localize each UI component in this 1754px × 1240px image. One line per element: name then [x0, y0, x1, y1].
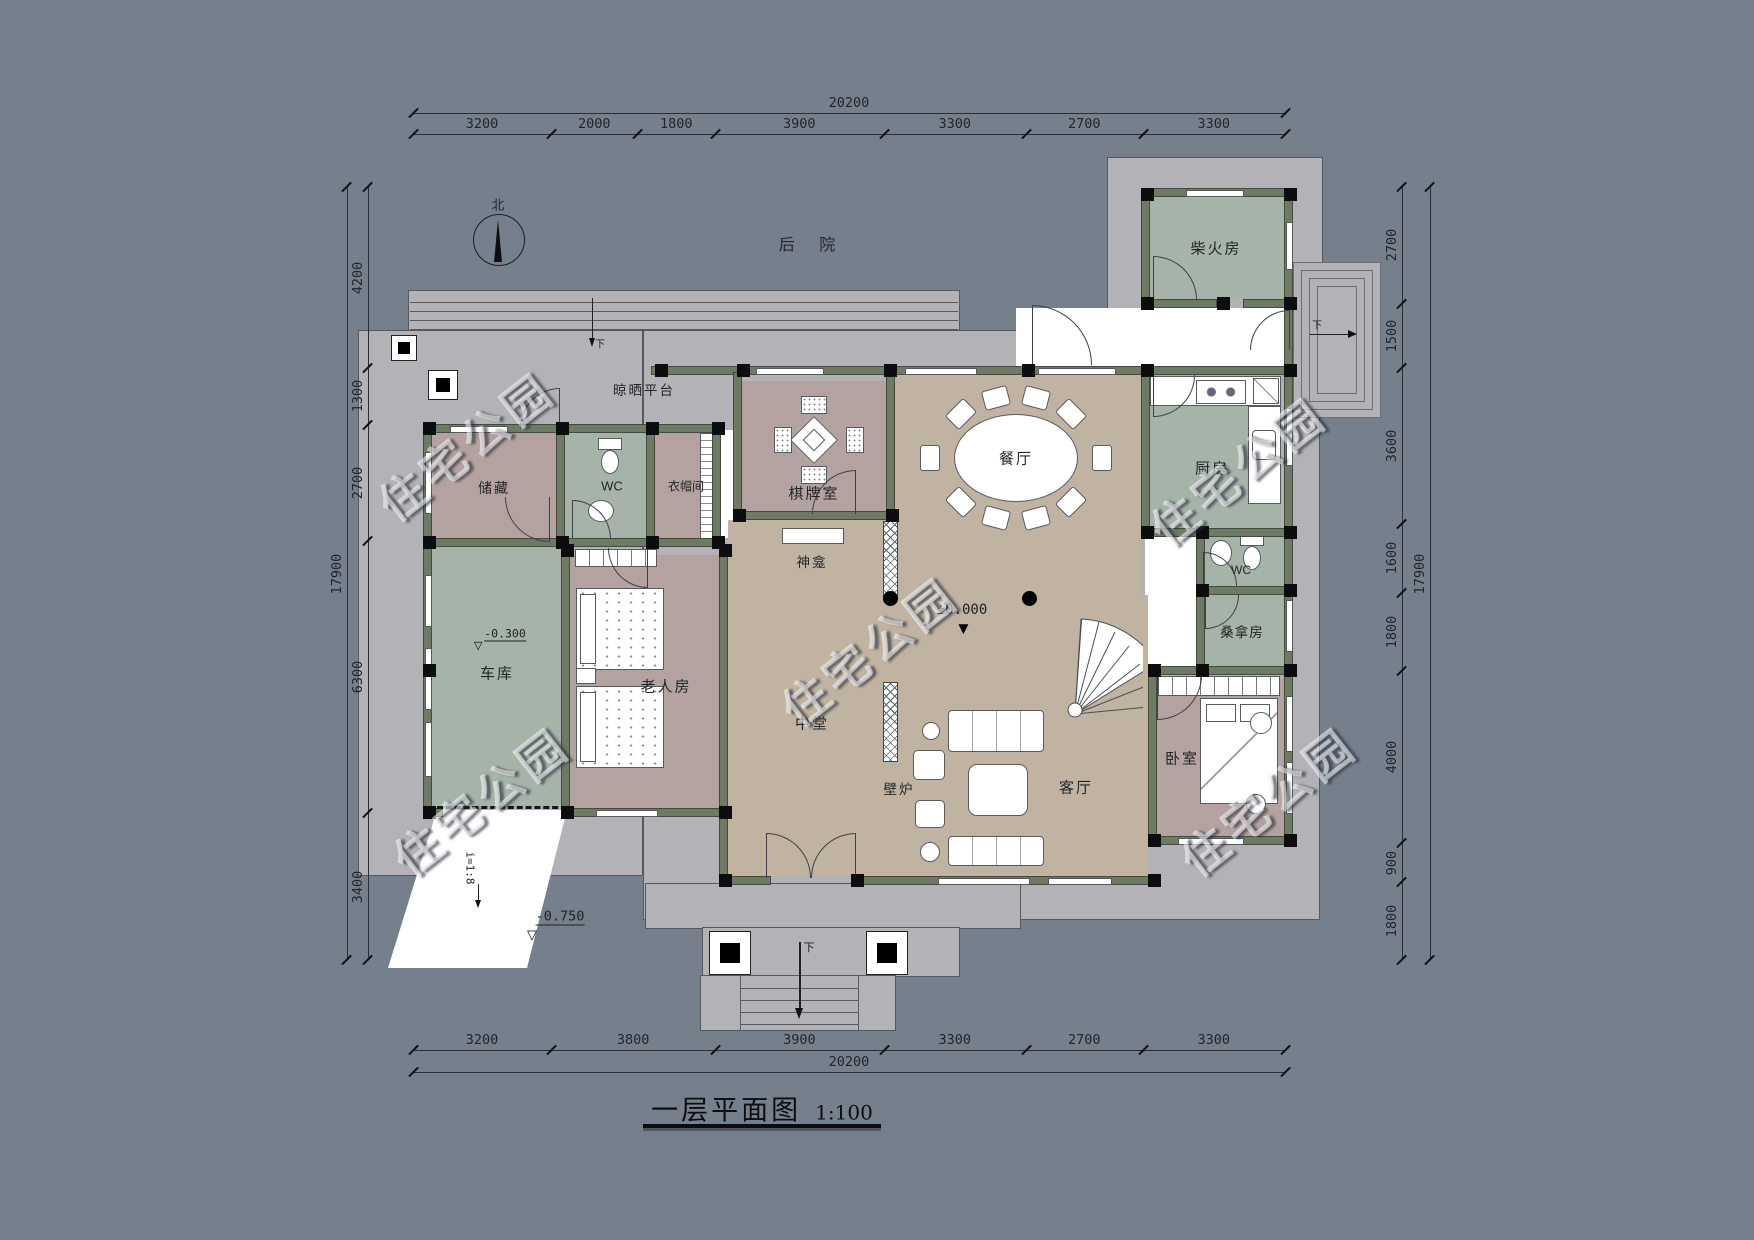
driveway-arrow-head: [475, 900, 481, 908]
wall-segment: [1148, 670, 1157, 844]
wall-segment: [719, 546, 728, 885]
room-label-bedroom: 卧室: [1165, 748, 1199, 769]
window: [1038, 368, 1116, 375]
column-marker: [712, 422, 725, 435]
dining-chair: [1092, 445, 1112, 471]
sofa: [948, 710, 1044, 752]
column-marker: [423, 664, 436, 677]
area-label-drying-platform: 晾晒平台: [613, 379, 675, 399]
dimension-bottom-segments: 320038003900330027003300: [413, 1028, 1285, 1051]
window: [756, 368, 824, 375]
pillow: [580, 594, 596, 664]
dim-label: 1800: [637, 116, 715, 132]
column-marker: [1284, 526, 1297, 539]
dim-label: 3300: [1142, 116, 1284, 132]
window: [905, 368, 977, 375]
room-label-cloakroom: 衣帽间: [668, 478, 704, 495]
dimension-top-segments: 3200200018003900330027003300: [413, 112, 1285, 135]
column-marker: [1141, 188, 1154, 201]
dim-label: 2700: [1026, 1032, 1143, 1048]
mahjong-chair: [846, 427, 864, 453]
column-marker: [1141, 364, 1154, 377]
room-label-living: 客厅: [1059, 777, 1093, 798]
entrance-arrow-head: [795, 1008, 803, 1019]
stove-icon: [1196, 380, 1246, 404]
column-marker: [423, 536, 436, 549]
dim-label: 1600: [1384, 527, 1400, 589]
mahjong-chair: [774, 427, 792, 453]
column-marker: [1284, 188, 1297, 201]
column-marker: [556, 422, 569, 435]
dimension-bottom-total: 20200: [413, 1050, 1285, 1073]
column-marker: [1148, 874, 1161, 887]
nightstand: [576, 668, 596, 684]
dim-label: 3200: [413, 1032, 551, 1048]
dim-label: 3400: [350, 856, 366, 918]
building-plate: [700, 975, 896, 1031]
column-marker: [719, 806, 732, 819]
dim-label: 2700: [1384, 214, 1400, 276]
dim-label: 20200: [413, 1054, 1285, 1070]
column-marker: [1196, 664, 1209, 677]
window: [1048, 878, 1112, 885]
dining-chair: [920, 445, 940, 471]
stair-down-terrace: 下: [595, 336, 605, 351]
round-column-marker: [1022, 591, 1037, 606]
level-entrance: -0.750: [536, 909, 585, 926]
column-marker: [561, 806, 574, 819]
toilet-tank: [598, 438, 622, 450]
window: [596, 810, 658, 817]
terrace-step-line: [410, 320, 958, 321]
room-label-wc-right: WC: [1231, 563, 1251, 577]
room-label-mahjong: 棋牌室: [788, 483, 839, 504]
room-label-elderly: 老人房: [640, 676, 691, 697]
column-marker: [851, 874, 864, 887]
window: [938, 878, 1030, 885]
room-label-sauna: 桑拿房: [1220, 621, 1264, 641]
mahjong-chair: [801, 466, 827, 484]
room-label-wc-left: WC: [601, 479, 623, 494]
room-label-dining: 餐厅: [999, 448, 1033, 469]
dim-label: 1300: [350, 365, 366, 427]
column-marker: [655, 364, 668, 377]
column-marker: [561, 544, 574, 557]
dim-label: 3300: [883, 116, 1025, 132]
terrace-arrow-line: [592, 298, 593, 340]
pillar-icon: [391, 335, 417, 361]
corridor: [1145, 536, 1196, 666]
title-scale: 1:100: [815, 1101, 873, 1125]
pillow: [580, 692, 596, 762]
back-porch-step: [1317, 286, 1357, 394]
dim-label: 3800: [551, 1032, 715, 1048]
toilet-tank: [1240, 536, 1264, 546]
column-marker: [1284, 664, 1297, 677]
dimension-left-total: 17900: [337, 187, 348, 960]
terrace-step-line: [410, 311, 958, 312]
wall-segment: [712, 430, 721, 540]
armchair: [913, 750, 945, 780]
driveway-slope-label: i=1:8: [464, 851, 477, 884]
room-label-garage: 车库: [480, 663, 514, 684]
column-marker: [646, 536, 659, 549]
window: [425, 575, 432, 627]
dim-label: 2000: [551, 116, 637, 132]
fireplace-chimney-hatched: [883, 682, 898, 762]
area-label-backyard: 后 院: [779, 231, 845, 255]
window: [1186, 190, 1244, 197]
stair-down-backporch: 下: [1312, 317, 1322, 332]
dimension-left-segments: 42001300270063003400: [358, 187, 369, 960]
level-garage: -0.300: [484, 627, 526, 642]
column-marker: [719, 544, 732, 557]
window: [1286, 222, 1293, 270]
dim-label: 3600: [1384, 415, 1400, 477]
stair-down-entrance: 下: [804, 939, 815, 955]
dim-label: 4000: [1384, 726, 1400, 788]
mahjong-chair: [801, 396, 827, 414]
title-underline: [643, 1124, 881, 1128]
side-table: [920, 842, 940, 862]
room-label-firewood: 柴火房: [1190, 238, 1241, 259]
armchair: [915, 800, 945, 828]
window: [425, 648, 432, 710]
wall-segment: [646, 430, 655, 540]
title-text: 一层平面图: [651, 1096, 801, 1126]
coffee-table: [968, 764, 1028, 816]
column-marker: [1284, 364, 1297, 377]
north-label: 北: [491, 195, 506, 214]
wall-segment: [1141, 366, 1293, 375]
dim-label: 4200: [350, 247, 366, 309]
building-plate: [645, 883, 1021, 929]
dim-label: 17900: [329, 543, 345, 605]
dimension-right-segments: 2700150036001600180040009001800: [1392, 187, 1403, 960]
toilet-bowl: [601, 450, 619, 474]
fan-icon: [1250, 712, 1272, 734]
window: [1286, 600, 1293, 652]
dim-label: 3900: [715, 116, 883, 132]
side-table: [922, 722, 940, 740]
dim-label: 3200: [413, 116, 551, 132]
pillow: [1206, 704, 1236, 722]
wall-segment: [1196, 586, 1293, 595]
column-marker: [733, 509, 746, 522]
dim-label: 1800: [1384, 601, 1400, 663]
backporch-arrow-head: [1348, 330, 1357, 338]
dim-label: 3300: [1143, 1032, 1285, 1048]
dim-label: 17900: [1412, 543, 1428, 605]
spiral-stair: [1043, 602, 1143, 720]
terrace-step-line: [410, 329, 958, 330]
dimension-top-total: 20200: [413, 90, 1285, 114]
column-marker: [884, 364, 897, 377]
dim-label: 2700: [1026, 116, 1143, 132]
level-garage-marker: ▽: [474, 641, 482, 652]
wall-segment: [1141, 192, 1150, 308]
column-marker: [1284, 584, 1297, 597]
backporch-arrow-line: [1310, 334, 1350, 335]
compass-needle: [494, 220, 502, 262]
column-marker: [1284, 834, 1297, 847]
level-entrance-marker: ▽: [527, 928, 537, 941]
column-marker: [1022, 364, 1035, 377]
column-marker: [646, 422, 659, 435]
entrance-arrow-line: [799, 942, 801, 1010]
pillar-icon: [866, 931, 908, 975]
wall-segment: [556, 430, 565, 540]
level-main-marker: ▼: [955, 620, 972, 637]
column-marker: [1148, 664, 1161, 677]
dim-label: 3300: [884, 1032, 1026, 1048]
floor-plan-canvas: 20200 3200200018003900330027003300 32003…: [0, 0, 1754, 1240]
wall-segment: [733, 372, 742, 520]
sofa: [948, 836, 1044, 866]
room-label-shrine: 神龛: [797, 551, 828, 571]
column-marker: [1284, 297, 1297, 310]
shrine-shelf: [782, 528, 844, 544]
column-marker: [1141, 297, 1154, 310]
entrance-step-edge: [858, 975, 859, 1031]
room-label-storage: 储藏: [478, 478, 510, 498]
column-marker: [1148, 834, 1161, 847]
column-marker: [737, 364, 750, 377]
column-marker: [886, 509, 899, 522]
dim-label: 6300: [350, 646, 366, 708]
dim-label: 1800: [1384, 890, 1400, 952]
wall-segment: [886, 372, 895, 520]
dimension-right-total: 17900: [1420, 187, 1431, 960]
entrance-step-edge: [740, 975, 741, 1031]
entrance-step-line: [740, 1024, 858, 1025]
terrace-step-line: [410, 302, 958, 303]
dim-label: 3900: [715, 1032, 883, 1048]
dim-label: 1500: [1384, 305, 1400, 367]
column-marker: [1217, 297, 1230, 310]
pillar-icon: [428, 370, 458, 400]
dim-label: 20200: [413, 95, 1285, 111]
room-label-fireplace: 壁炉: [884, 778, 915, 798]
column-marker: [719, 874, 732, 887]
drawing-title: 一层平面图1:100: [651, 1089, 873, 1128]
pillar-icon: [709, 931, 751, 975]
wall-segment: [1148, 666, 1293, 675]
column-marker: [1196, 584, 1209, 597]
window: [425, 722, 432, 777]
